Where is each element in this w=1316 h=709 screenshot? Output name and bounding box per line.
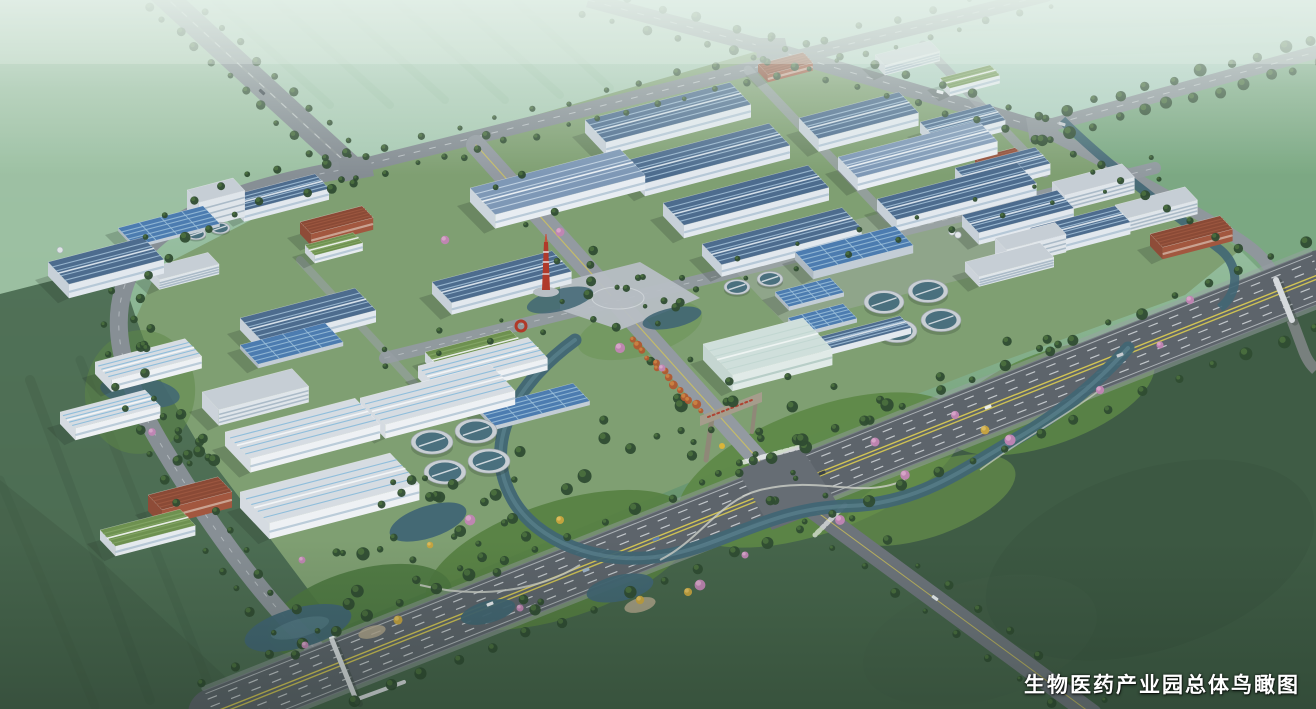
clarifier-tank <box>864 290 904 317</box>
birdseye-scene <box>0 0 1316 709</box>
clarifier-tank <box>455 419 497 447</box>
clarifier-tank <box>757 271 783 288</box>
caption-title: 生物医药产业园总体鸟瞰图 <box>1024 669 1300 699</box>
clarifier-tank <box>724 279 750 296</box>
clarifier-tank <box>424 460 466 488</box>
clarifier-tank <box>908 279 948 306</box>
aerial-rendering: 生物医药产业园总体鸟瞰图 <box>0 0 1316 709</box>
clarifier-tank <box>921 308 961 335</box>
clarifier-tank <box>411 430 453 458</box>
clarifier-tank <box>468 449 510 477</box>
